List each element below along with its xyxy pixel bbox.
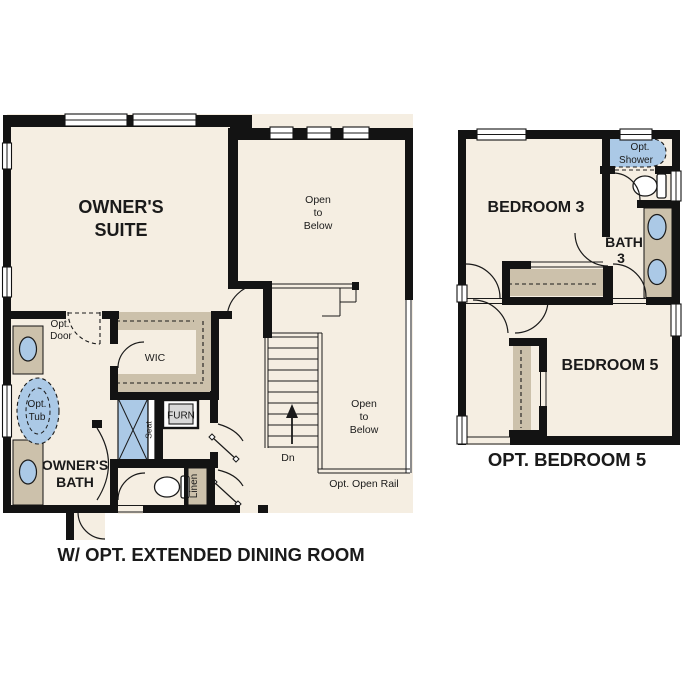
wall-openings [118, 504, 143, 514]
bath3-label: 3 [617, 250, 625, 266]
opt-tub-label: Tub [29, 412, 46, 423]
furnace-label: FURN [167, 411, 195, 422]
opt-open-rail-label: Opt. Open Rail [329, 478, 398, 490]
open-to-below-upper-label: Open [305, 194, 331, 206]
opt-shower-label: Shower [619, 155, 654, 166]
right-plan-caption: OPT. BEDROOM 5 [488, 449, 646, 470]
sink-symbol [20, 337, 37, 361]
bedroom5-label: BEDROOM 5 [562, 357, 659, 374]
opt-door-label: Door [50, 331, 72, 342]
toilet-symbol [633, 174, 666, 198]
owners-bath-label: OWNER'S [42, 457, 108, 473]
linen-label: Linen [189, 474, 200, 498]
toilet-symbol [155, 476, 190, 498]
floor-plan-page: OWNER'S SUITE Open to Below WIC FURN Sea… [0, 0, 687, 687]
open-to-below-upper-label: Below [304, 220, 333, 232]
opt-door-label: Opt. [51, 319, 70, 330]
sink-symbol [20, 460, 37, 484]
right-plan: BEDROOM 3 BATH 3 Opt. Shower BEDROOM 5 O… [457, 129, 681, 470]
bathtub-symbol [17, 378, 59, 444]
opt-shower-label: Opt. [631, 142, 650, 153]
bedroom5-closet [513, 346, 531, 432]
owners-suite-label: OWNER'S [78, 197, 163, 217]
bath3-label: BATH [605, 234, 643, 250]
opt-tub-label: Opt. [28, 399, 47, 410]
left-plan: OWNER'S SUITE Open to Below WIC FURN Sea… [3, 114, 414, 565]
sink-symbol [648, 260, 666, 285]
open-to-below-lower-label: to [360, 411, 369, 423]
owners-bath-label: BATH [56, 474, 94, 490]
stairs-dn-label: Dn [281, 452, 295, 464]
bedroom3-label: BEDROOM 3 [488, 199, 585, 216]
left-plan-caption: W/ OPT. EXTENDED DINING ROOM [57, 544, 364, 565]
owners-suite-label: SUITE [94, 220, 147, 240]
open-to-below-upper-label: to [314, 207, 323, 219]
sink-symbol [648, 215, 666, 240]
open-to-below-lower-label: Open [351, 398, 377, 410]
wic-label: WIC [145, 352, 166, 364]
floor-plan-canvas: OWNER'S SUITE Open to Below WIC FURN Sea… [0, 0, 687, 687]
open-to-below-lower-label: Below [350, 424, 379, 436]
seat-label: Seat [144, 421, 154, 439]
